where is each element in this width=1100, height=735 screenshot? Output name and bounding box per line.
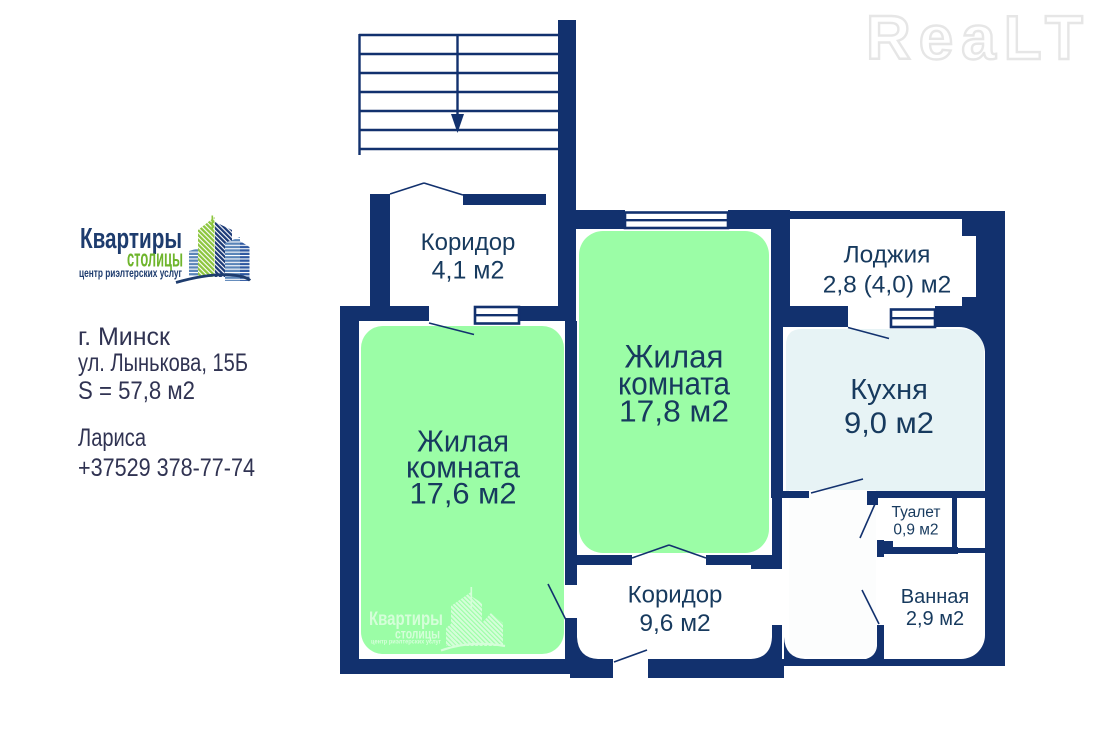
svg-text:г. Минск: г. Минск [78,323,171,351]
svg-text:+37529 378-77-74: +37529 378-77-74 [78,454,255,482]
svg-text:2,8 (4,0) м2: 2,8 (4,0) м2 [823,272,952,299]
svg-text:9,6 м2: 9,6 м2 [639,610,710,637]
svg-text:Лариса: Лариса [78,424,146,452]
svg-text:Коридор: Коридор [421,229,516,256]
svg-text:Туалет: Туалет [891,504,940,521]
svg-text:центр риэлтерских услуг: центр риэлтерских услуг [79,266,182,280]
svg-text:0,9 м2: 0,9 м2 [893,522,938,539]
svg-text:2,9 м2: 2,9 м2 [906,608,964,630]
svg-text:Лоджия: Лоджия [844,242,931,269]
svg-text:ReaLT: ReaLT [866,4,1091,73]
svg-text:центр риэлтерских услуг: центр риэлтерских услуг [371,639,441,646]
svg-text:Кухня: Кухня [850,374,928,406]
svg-text:Ванная: Ванная [901,586,970,608]
svg-text:S = 57,8 м2: S = 57,8 м2 [78,377,195,405]
svg-text:4,1 м2: 4,1 м2 [432,257,505,285]
svg-text:ул. Лынькова, 15Б: ул. Лынькова, 15Б [78,349,248,377]
svg-text:17,6 м2: 17,6 м2 [410,478,517,511]
svg-text:9,0 м2: 9,0 м2 [844,407,934,440]
svg-text:17,8 м2: 17,8 м2 [619,394,729,429]
svg-text:Коридор: Коридор [628,582,723,609]
